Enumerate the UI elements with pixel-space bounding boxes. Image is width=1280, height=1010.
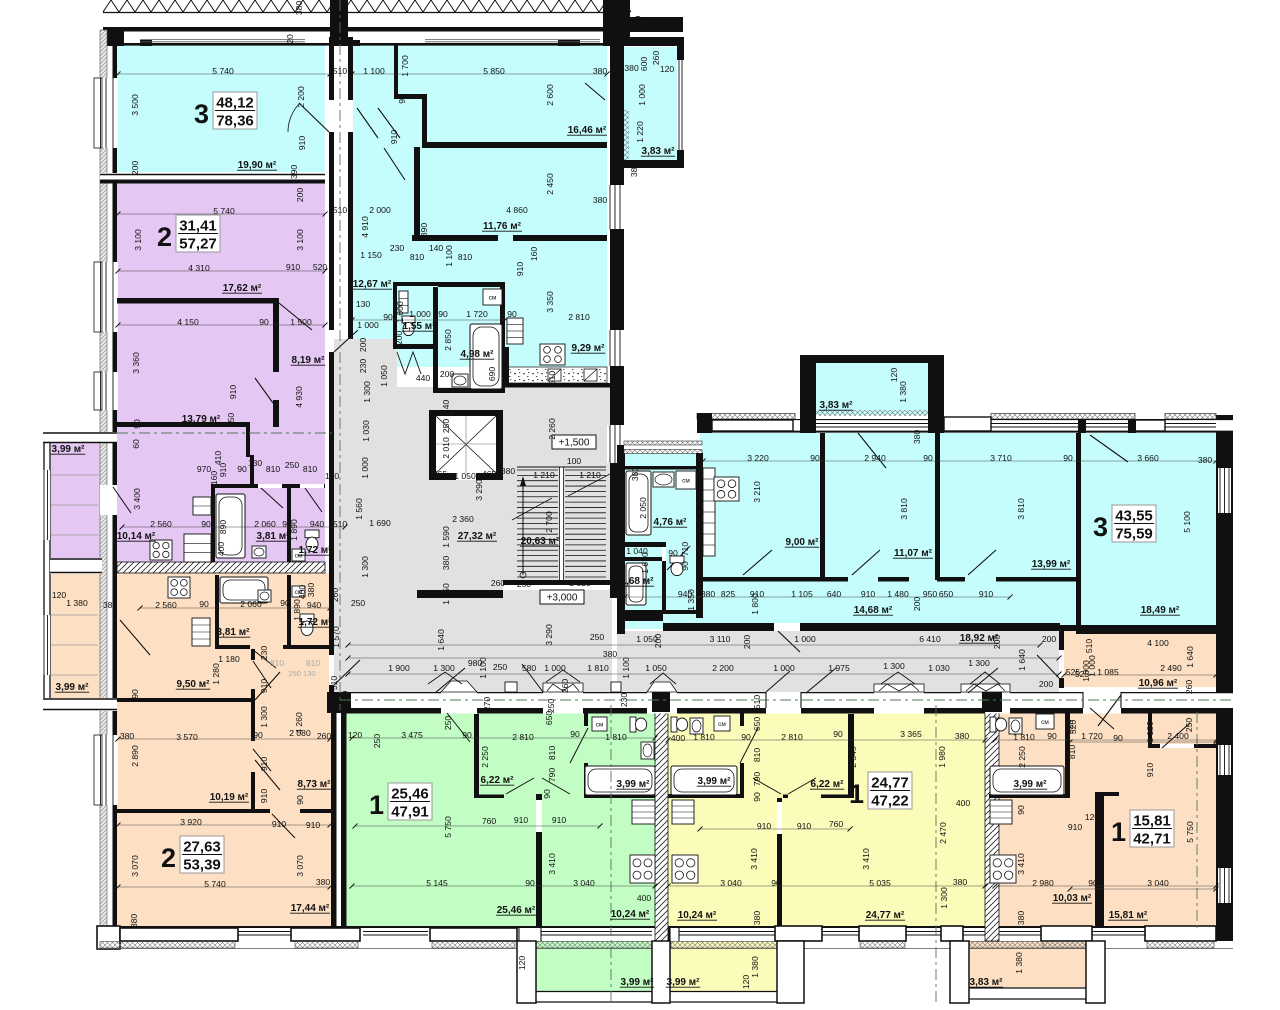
svg-text:2 810: 2 810 bbox=[568, 312, 590, 322]
svg-text:19,90 м²: 19,90 м² bbox=[238, 160, 277, 171]
svg-text:200: 200 bbox=[394, 331, 404, 346]
svg-text:250 130: 250 130 bbox=[288, 669, 315, 678]
svg-text:5 750: 5 750 bbox=[443, 816, 453, 838]
svg-text:120: 120 bbox=[889, 368, 899, 383]
svg-text:3 500: 3 500 bbox=[130, 94, 140, 116]
svg-text:3,99 м²: 3,99 м² bbox=[617, 779, 651, 790]
svg-text:1 380: 1 380 bbox=[617, 63, 639, 73]
svg-text:42,71: 42,71 bbox=[1133, 831, 1171, 848]
svg-text:90: 90 bbox=[132, 419, 142, 429]
svg-text:1 050: 1 050 bbox=[379, 365, 389, 387]
svg-text:380: 380 bbox=[294, 1, 304, 16]
svg-text:1 980: 1 980 bbox=[937, 746, 947, 768]
svg-text:3,83 м²: 3,83 м² bbox=[970, 977, 1004, 988]
svg-text:2 850: 2 850 bbox=[443, 329, 453, 351]
svg-text:1 000: 1 000 bbox=[773, 663, 795, 673]
svg-text:120: 120 bbox=[517, 956, 527, 971]
svg-text:1 105: 1 105 bbox=[791, 589, 813, 599]
svg-text:1 810: 1 810 bbox=[605, 732, 627, 742]
svg-text:160: 160 bbox=[529, 247, 539, 262]
svg-text:1 000: 1 000 bbox=[794, 634, 816, 644]
svg-text:940: 940 bbox=[307, 600, 322, 610]
svg-text:2: 2 bbox=[157, 222, 172, 252]
svg-text:15,81: 15,81 bbox=[1133, 813, 1171, 830]
svg-text:53,39: 53,39 bbox=[183, 857, 221, 874]
svg-text:380: 380 bbox=[501, 466, 516, 476]
svg-text:910: 910 bbox=[552, 815, 567, 825]
svg-text:1 300: 1 300 bbox=[883, 661, 905, 671]
svg-text:250: 250 bbox=[546, 699, 556, 714]
svg-text:380: 380 bbox=[701, 589, 716, 599]
svg-text:650: 650 bbox=[226, 413, 236, 428]
svg-text:5 740: 5 740 bbox=[212, 66, 234, 76]
svg-text:1 030: 1 030 bbox=[928, 663, 950, 673]
svg-text:1 890: 1 890 bbox=[292, 599, 302, 621]
svg-text:1 050: 1 050 bbox=[441, 583, 451, 605]
svg-text:см: см bbox=[682, 478, 690, 485]
svg-text:510: 510 bbox=[333, 66, 348, 76]
svg-text:140: 140 bbox=[441, 400, 451, 415]
svg-text:400: 400 bbox=[637, 893, 652, 903]
svg-text:90: 90 bbox=[1088, 878, 1098, 888]
svg-text:1 000: 1 000 bbox=[357, 320, 379, 330]
svg-text:1 000: 1 000 bbox=[409, 309, 431, 319]
svg-text:3 410: 3 410 bbox=[1016, 853, 1026, 875]
svg-text:3,83 м²: 3,83 м² bbox=[820, 400, 854, 411]
svg-text:2 000: 2 000 bbox=[369, 205, 391, 215]
svg-text:250: 250 bbox=[285, 460, 300, 470]
svg-text:890: 890 bbox=[419, 223, 429, 238]
svg-text:650: 650 bbox=[752, 717, 762, 732]
svg-text:140: 140 bbox=[429, 243, 444, 253]
svg-text:3,99 м²: 3,99 м² bbox=[621, 977, 655, 988]
svg-text:90: 90 bbox=[752, 792, 762, 802]
svg-text:3 660: 3 660 bbox=[1137, 453, 1159, 463]
svg-text:400: 400 bbox=[956, 798, 971, 808]
svg-text:1 600: 1 600 bbox=[395, 301, 405, 323]
svg-text:440: 440 bbox=[416, 373, 431, 383]
svg-text:380: 380 bbox=[955, 731, 970, 741]
svg-text:1,55 м²: 1,55 м² bbox=[403, 321, 437, 332]
svg-text:1 000: 1 000 bbox=[360, 457, 370, 479]
svg-text:380: 380 bbox=[593, 195, 608, 205]
svg-text:200: 200 bbox=[912, 597, 922, 612]
svg-text:90: 90 bbox=[462, 730, 472, 740]
svg-text:5 100: 5 100 bbox=[1182, 511, 1192, 533]
svg-text:910: 910 bbox=[286, 262, 301, 272]
svg-text:10,14 м²: 10,14 м² bbox=[117, 531, 156, 542]
svg-text:6,22 м²: 6,22 м² bbox=[811, 779, 845, 790]
svg-text:1: 1 bbox=[849, 779, 864, 809]
svg-text:380: 380 bbox=[603, 649, 618, 659]
svg-text:10,19 м²: 10,19 м² bbox=[210, 792, 249, 803]
svg-text:380: 380 bbox=[129, 914, 139, 929]
svg-text:90: 90 bbox=[1113, 733, 1123, 743]
svg-text:2 060: 2 060 bbox=[240, 599, 262, 609]
svg-text:520: 520 bbox=[1068, 720, 1078, 735]
svg-text:3,81 м²: 3,81 м² bbox=[257, 531, 291, 542]
svg-text:1 300: 1 300 bbox=[362, 381, 372, 403]
svg-text:2 200: 2 200 bbox=[712, 663, 734, 673]
svg-text:27,32 м²: 27,32 м² bbox=[458, 531, 497, 542]
svg-text:270: 270 bbox=[482, 697, 492, 712]
svg-text:4,98 м²: 4,98 м² bbox=[461, 349, 495, 360]
svg-text:510: 510 bbox=[333, 519, 348, 529]
svg-text:260: 260 bbox=[651, 51, 661, 66]
svg-text:3 360: 3 360 bbox=[131, 352, 141, 374]
svg-text:250: 250 bbox=[590, 632, 605, 642]
svg-text:910: 910 bbox=[228, 385, 238, 400]
svg-text:1: 1 bbox=[369, 790, 384, 820]
svg-text:4 860: 4 860 bbox=[506, 205, 528, 215]
svg-text:1 640: 1 640 bbox=[1185, 646, 1195, 668]
svg-text:4,76 м²: 4,76 м² bbox=[654, 517, 688, 528]
svg-text:390: 390 bbox=[289, 165, 299, 180]
svg-text:2 890: 2 890 bbox=[130, 745, 140, 767]
svg-text:510: 510 bbox=[752, 695, 762, 710]
svg-text:5 740: 5 740 bbox=[204, 879, 226, 889]
svg-text:130: 130 bbox=[356, 299, 371, 309]
svg-text:90: 90 bbox=[833, 729, 843, 739]
svg-text:1 570: 1 570 bbox=[331, 626, 341, 648]
svg-text:1 690: 1 690 bbox=[369, 518, 391, 528]
svg-text:3 040: 3 040 bbox=[1147, 878, 1169, 888]
svg-text:11,76 м²: 11,76 м² bbox=[483, 221, 522, 232]
svg-text:17,62 м²: 17,62 м² bbox=[223, 283, 262, 294]
svg-text:1 300: 1 300 bbox=[259, 706, 269, 728]
svg-text:3 350: 3 350 bbox=[545, 291, 555, 313]
svg-text:3,99 м²: 3,99 м² bbox=[56, 682, 90, 693]
svg-text:260: 260 bbox=[491, 578, 506, 588]
svg-text:400: 400 bbox=[671, 733, 686, 743]
svg-text:1 050: 1 050 bbox=[645, 663, 667, 673]
svg-text:90: 90 bbox=[525, 878, 535, 888]
svg-text:1 030: 1 030 bbox=[361, 420, 371, 442]
svg-text:1 720: 1 720 bbox=[1081, 731, 1103, 741]
svg-text:20: 20 bbox=[285, 34, 295, 44]
svg-text:57,27: 57,27 bbox=[179, 236, 217, 253]
svg-text:250: 250 bbox=[351, 598, 366, 608]
svg-text:120: 120 bbox=[348, 730, 363, 740]
svg-text:3 210: 3 210 bbox=[752, 481, 762, 503]
svg-text:10,96 м²: 10,96 м² bbox=[1139, 678, 1178, 689]
svg-text:48,12: 48,12 bbox=[216, 95, 254, 112]
svg-text:380: 380 bbox=[953, 877, 968, 887]
svg-text:1 890: 1 890 bbox=[289, 519, 299, 541]
svg-text:3 070: 3 070 bbox=[295, 855, 305, 877]
svg-text:10,03 м²: 10,03 м² bbox=[1053, 893, 1092, 904]
svg-text:17,44 м²: 17,44 м² bbox=[291, 903, 330, 914]
svg-text:465: 465 bbox=[433, 469, 448, 479]
svg-text:1 100: 1 100 bbox=[363, 66, 385, 76]
svg-text:100: 100 bbox=[567, 456, 582, 466]
svg-text:2 560: 2 560 bbox=[150, 519, 172, 529]
svg-text:6 410: 6 410 bbox=[919, 634, 941, 644]
svg-text:90: 90 bbox=[570, 729, 580, 739]
svg-text:60: 60 bbox=[131, 439, 141, 449]
svg-text:380: 380 bbox=[593, 66, 608, 76]
svg-text:2 470: 2 470 bbox=[938, 822, 948, 844]
svg-text:790: 790 bbox=[752, 772, 762, 787]
svg-text:2 810: 2 810 bbox=[512, 732, 534, 742]
svg-text:1 150: 1 150 bbox=[360, 250, 382, 260]
svg-text:250: 250 bbox=[1184, 718, 1194, 733]
svg-text:90: 90 bbox=[201, 519, 211, 529]
svg-text:2 600: 2 600 bbox=[545, 84, 555, 106]
svg-text:90: 90 bbox=[923, 453, 933, 463]
svg-text:260: 260 bbox=[1184, 680, 1194, 695]
svg-text:710: 710 bbox=[680, 542, 690, 557]
svg-text:11,07 м²: 11,07 м² bbox=[894, 548, 933, 559]
svg-text:31,41: 31,41 bbox=[179, 218, 217, 235]
svg-text:3 410: 3 410 bbox=[861, 848, 871, 870]
svg-text:910: 910 bbox=[389, 130, 399, 145]
svg-text:1 800: 1 800 bbox=[750, 593, 760, 615]
svg-text:18,49 м²: 18,49 м² bbox=[1141, 605, 1180, 616]
svg-text:2 200: 2 200 bbox=[296, 86, 306, 108]
svg-text:90: 90 bbox=[668, 548, 678, 558]
svg-text:5 035: 5 035 bbox=[869, 878, 891, 888]
svg-text:1 210: 1 210 bbox=[533, 470, 555, 480]
svg-text:1 300: 1 300 bbox=[433, 663, 455, 673]
svg-text:250: 250 bbox=[443, 716, 453, 731]
svg-text:380: 380 bbox=[633, 16, 643, 31]
svg-text:910: 910 bbox=[1145, 763, 1155, 778]
svg-text:90: 90 bbox=[1063, 453, 1073, 463]
svg-text:1 210: 1 210 bbox=[579, 470, 601, 480]
svg-text:90: 90 bbox=[507, 309, 517, 319]
svg-text:200: 200 bbox=[130, 161, 140, 176]
svg-text:14,68 м²: 14,68 м² bbox=[854, 605, 893, 616]
svg-text:400: 400 bbox=[216, 542, 226, 557]
svg-text:510: 510 bbox=[547, 371, 557, 386]
svg-text:200: 200 bbox=[653, 634, 663, 649]
svg-text:200: 200 bbox=[295, 188, 305, 203]
svg-text:380: 380 bbox=[103, 600, 118, 610]
svg-text:250: 250 bbox=[441, 419, 451, 434]
svg-text:120: 120 bbox=[660, 64, 675, 74]
svg-text:810: 810 bbox=[270, 658, 285, 668]
svg-text:130: 130 bbox=[248, 458, 263, 468]
svg-text:2 250: 2 250 bbox=[480, 746, 490, 768]
svg-text:5 145: 5 145 bbox=[426, 878, 448, 888]
svg-text:3 290: 3 290 bbox=[544, 624, 554, 646]
svg-text:1 810: 1 810 bbox=[587, 663, 609, 673]
svg-text:3,99 м²: 3,99 м² bbox=[698, 776, 732, 787]
svg-text:2 560: 2 560 bbox=[155, 600, 177, 610]
svg-text:1 050: 1 050 bbox=[454, 471, 476, 481]
svg-text:380: 380 bbox=[1198, 455, 1213, 465]
svg-text:200: 200 bbox=[440, 369, 455, 379]
svg-text:2 260: 2 260 bbox=[547, 418, 557, 440]
svg-text:910: 910 bbox=[259, 679, 269, 694]
svg-text:380: 380 bbox=[630, 467, 640, 482]
svg-text:24,77: 24,77 bbox=[871, 775, 909, 792]
svg-text:2 360: 2 360 bbox=[452, 514, 474, 524]
svg-text:1 300: 1 300 bbox=[968, 658, 990, 668]
svg-text:810: 810 bbox=[306, 658, 321, 668]
svg-text:1 720: 1 720 bbox=[466, 309, 488, 319]
svg-text:3 400: 3 400 bbox=[132, 488, 142, 510]
svg-text:47,91: 47,91 bbox=[391, 804, 429, 821]
svg-text:1 280: 1 280 bbox=[211, 663, 221, 685]
svg-text:90: 90 bbox=[680, 561, 690, 571]
svg-text:см: см bbox=[596, 722, 604, 729]
svg-text:910: 910 bbox=[514, 815, 529, 825]
svg-text:1 100: 1 100 bbox=[478, 657, 488, 679]
svg-text:6,22 м²: 6,22 м² bbox=[481, 775, 515, 786]
svg-text:2 340: 2 340 bbox=[848, 746, 858, 768]
svg-text:3 410: 3 410 bbox=[547, 853, 557, 875]
svg-text:90: 90 bbox=[810, 453, 820, 463]
svg-text:90: 90 bbox=[1047, 731, 1057, 741]
svg-text:380: 380 bbox=[1016, 911, 1026, 926]
svg-text:200: 200 bbox=[358, 338, 368, 353]
svg-text:3 100: 3 100 bbox=[295, 229, 305, 251]
svg-text:90: 90 bbox=[1016, 805, 1026, 815]
svg-text:1 480: 1 480 bbox=[887, 589, 909, 599]
svg-text:1,72 м²: 1,72 м² bbox=[299, 617, 333, 628]
svg-text:525: 525 bbox=[1066, 667, 1081, 677]
svg-text:1 670: 1 670 bbox=[640, 552, 650, 574]
svg-text:4 930: 4 930 bbox=[294, 386, 304, 408]
svg-text:1 000: 1 000 bbox=[1081, 660, 1091, 682]
svg-text:20,63 м²: 20,63 м² bbox=[521, 536, 560, 547]
svg-text:4 100: 4 100 bbox=[1147, 638, 1169, 648]
svg-text:3 290: 3 290 bbox=[474, 479, 484, 501]
svg-text:90: 90 bbox=[771, 878, 781, 888]
svg-text:260: 260 bbox=[560, 679, 570, 694]
svg-text:15,81 м²: 15,81 м² bbox=[1109, 910, 1148, 921]
svg-text:810: 810 bbox=[547, 746, 557, 761]
svg-text:940: 940 bbox=[310, 519, 325, 529]
svg-text:600: 600 bbox=[639, 57, 649, 72]
svg-text:1 100: 1 100 bbox=[621, 657, 631, 679]
svg-text:1 000: 1 000 bbox=[544, 663, 566, 673]
svg-text:230: 230 bbox=[358, 359, 368, 374]
svg-text:910: 910 bbox=[1068, 822, 1083, 832]
svg-text:825: 825 bbox=[721, 589, 736, 599]
svg-text:1 380: 1 380 bbox=[66, 598, 88, 608]
svg-text:8,19 м²: 8,19 м² bbox=[292, 355, 326, 366]
svg-text:3 920: 3 920 bbox=[180, 817, 202, 827]
svg-text:2 450: 2 450 bbox=[545, 173, 555, 195]
svg-text:2 060: 2 060 bbox=[254, 519, 276, 529]
svg-text:78,36: 78,36 bbox=[216, 113, 254, 130]
svg-text:1 810: 1 810 bbox=[1013, 732, 1035, 742]
svg-text:3 220: 3 220 bbox=[747, 453, 769, 463]
svg-text:75,59: 75,59 bbox=[1115, 526, 1153, 543]
svg-text:3 570: 3 570 bbox=[176, 732, 198, 742]
svg-text:+1,500: +1,500 bbox=[559, 438, 590, 449]
svg-text:3 475: 3 475 bbox=[401, 730, 423, 740]
svg-text:380: 380 bbox=[752, 911, 762, 926]
svg-text:1 220: 1 220 bbox=[635, 121, 645, 143]
svg-text:910: 910 bbox=[272, 819, 287, 829]
svg-text:3,99 м²: 3,99 м² bbox=[52, 444, 86, 455]
svg-text:260: 260 bbox=[330, 588, 340, 603]
svg-text:1 000: 1 000 bbox=[637, 84, 647, 106]
svg-text:1 380: 1 380 bbox=[1014, 952, 1024, 974]
svg-text:230: 230 bbox=[619, 693, 629, 708]
svg-text:90: 90 bbox=[253, 730, 263, 740]
svg-text:650: 650 bbox=[939, 589, 954, 599]
svg-text:940: 940 bbox=[678, 589, 693, 599]
svg-text:160: 160 bbox=[209, 471, 219, 486]
svg-text:90: 90 bbox=[237, 464, 247, 474]
svg-text:380: 380 bbox=[316, 877, 331, 887]
svg-text:3 040: 3 040 bbox=[573, 878, 595, 888]
svg-text:3,83 м²: 3,83 м² bbox=[642, 146, 676, 157]
svg-text:5 740: 5 740 bbox=[213, 206, 235, 216]
svg-text:3 040: 3 040 bbox=[720, 878, 742, 888]
svg-text:90: 90 bbox=[199, 599, 209, 609]
svg-text:1,72 м²: 1,72 м² bbox=[299, 545, 333, 556]
svg-text:1 380: 1 380 bbox=[750, 956, 760, 978]
svg-text:90: 90 bbox=[259, 317, 269, 327]
svg-text:2 490: 2 490 bbox=[1160, 663, 1182, 673]
svg-text:380: 380 bbox=[912, 430, 922, 445]
svg-text:910: 910 bbox=[218, 463, 228, 478]
svg-text:90: 90 bbox=[542, 789, 552, 799]
svg-text:1 300: 1 300 bbox=[360, 556, 370, 578]
svg-text:580: 580 bbox=[522, 663, 537, 673]
svg-text:3 410: 3 410 bbox=[749, 848, 759, 870]
svg-text:43,55: 43,55 bbox=[1115, 508, 1153, 525]
svg-text:810: 810 bbox=[1067, 745, 1077, 760]
svg-text:3 365: 3 365 bbox=[900, 729, 922, 739]
svg-text:200: 200 bbox=[1039, 679, 1054, 689]
svg-text:1 085: 1 085 bbox=[1097, 667, 1119, 677]
svg-text:3 100: 3 100 bbox=[133, 229, 143, 251]
svg-text:910: 910 bbox=[259, 789, 269, 804]
svg-text:910: 910 bbox=[757, 821, 772, 831]
svg-text:3,99 м²: 3,99 м² bbox=[1014, 779, 1048, 790]
svg-text:510: 510 bbox=[329, 676, 339, 691]
svg-text:640: 640 bbox=[827, 589, 842, 599]
svg-text:90: 90 bbox=[280, 598, 290, 608]
svg-text:1 300: 1 300 bbox=[939, 887, 949, 909]
svg-text:250: 250 bbox=[517, 579, 532, 589]
svg-text:90: 90 bbox=[741, 732, 751, 742]
svg-text:1 975: 1 975 bbox=[828, 663, 850, 673]
svg-text:90: 90 bbox=[130, 689, 140, 699]
svg-text:2 520: 2 520 bbox=[569, 578, 591, 588]
svg-text:24,77 м²: 24,77 м² bbox=[866, 910, 905, 921]
svg-text:1 700: 1 700 bbox=[400, 55, 410, 77]
svg-text:9,50 м²: 9,50 м² bbox=[177, 679, 211, 690]
svg-text:3,81 м²: 3,81 м² bbox=[217, 627, 251, 638]
svg-text:13,79 м²: 13,79 м² bbox=[182, 414, 221, 425]
svg-text:120: 120 bbox=[52, 590, 67, 600]
svg-text:120: 120 bbox=[1085, 812, 1100, 822]
svg-text:5 750: 5 750 bbox=[1185, 821, 1195, 843]
svg-text:3 810: 3 810 bbox=[899, 498, 909, 520]
svg-text:1 640: 1 640 bbox=[436, 629, 446, 651]
svg-text:см: см bbox=[718, 721, 726, 728]
svg-text:4 150: 4 150 bbox=[177, 317, 199, 327]
svg-text:130: 130 bbox=[695, 572, 705, 587]
svg-text:380: 380 bbox=[306, 583, 316, 598]
svg-text:810: 810 bbox=[410, 252, 425, 262]
svg-text:1 100: 1 100 bbox=[444, 245, 454, 267]
svg-text:910: 910 bbox=[797, 821, 812, 831]
svg-text:90: 90 bbox=[383, 312, 393, 322]
svg-text:25,46 м²: 25,46 м² bbox=[497, 905, 536, 916]
svg-text:810: 810 bbox=[266, 464, 281, 474]
svg-text:8,73 м²: 8,73 м² bbox=[298, 779, 332, 790]
svg-text:3 810: 3 810 bbox=[1016, 498, 1026, 520]
